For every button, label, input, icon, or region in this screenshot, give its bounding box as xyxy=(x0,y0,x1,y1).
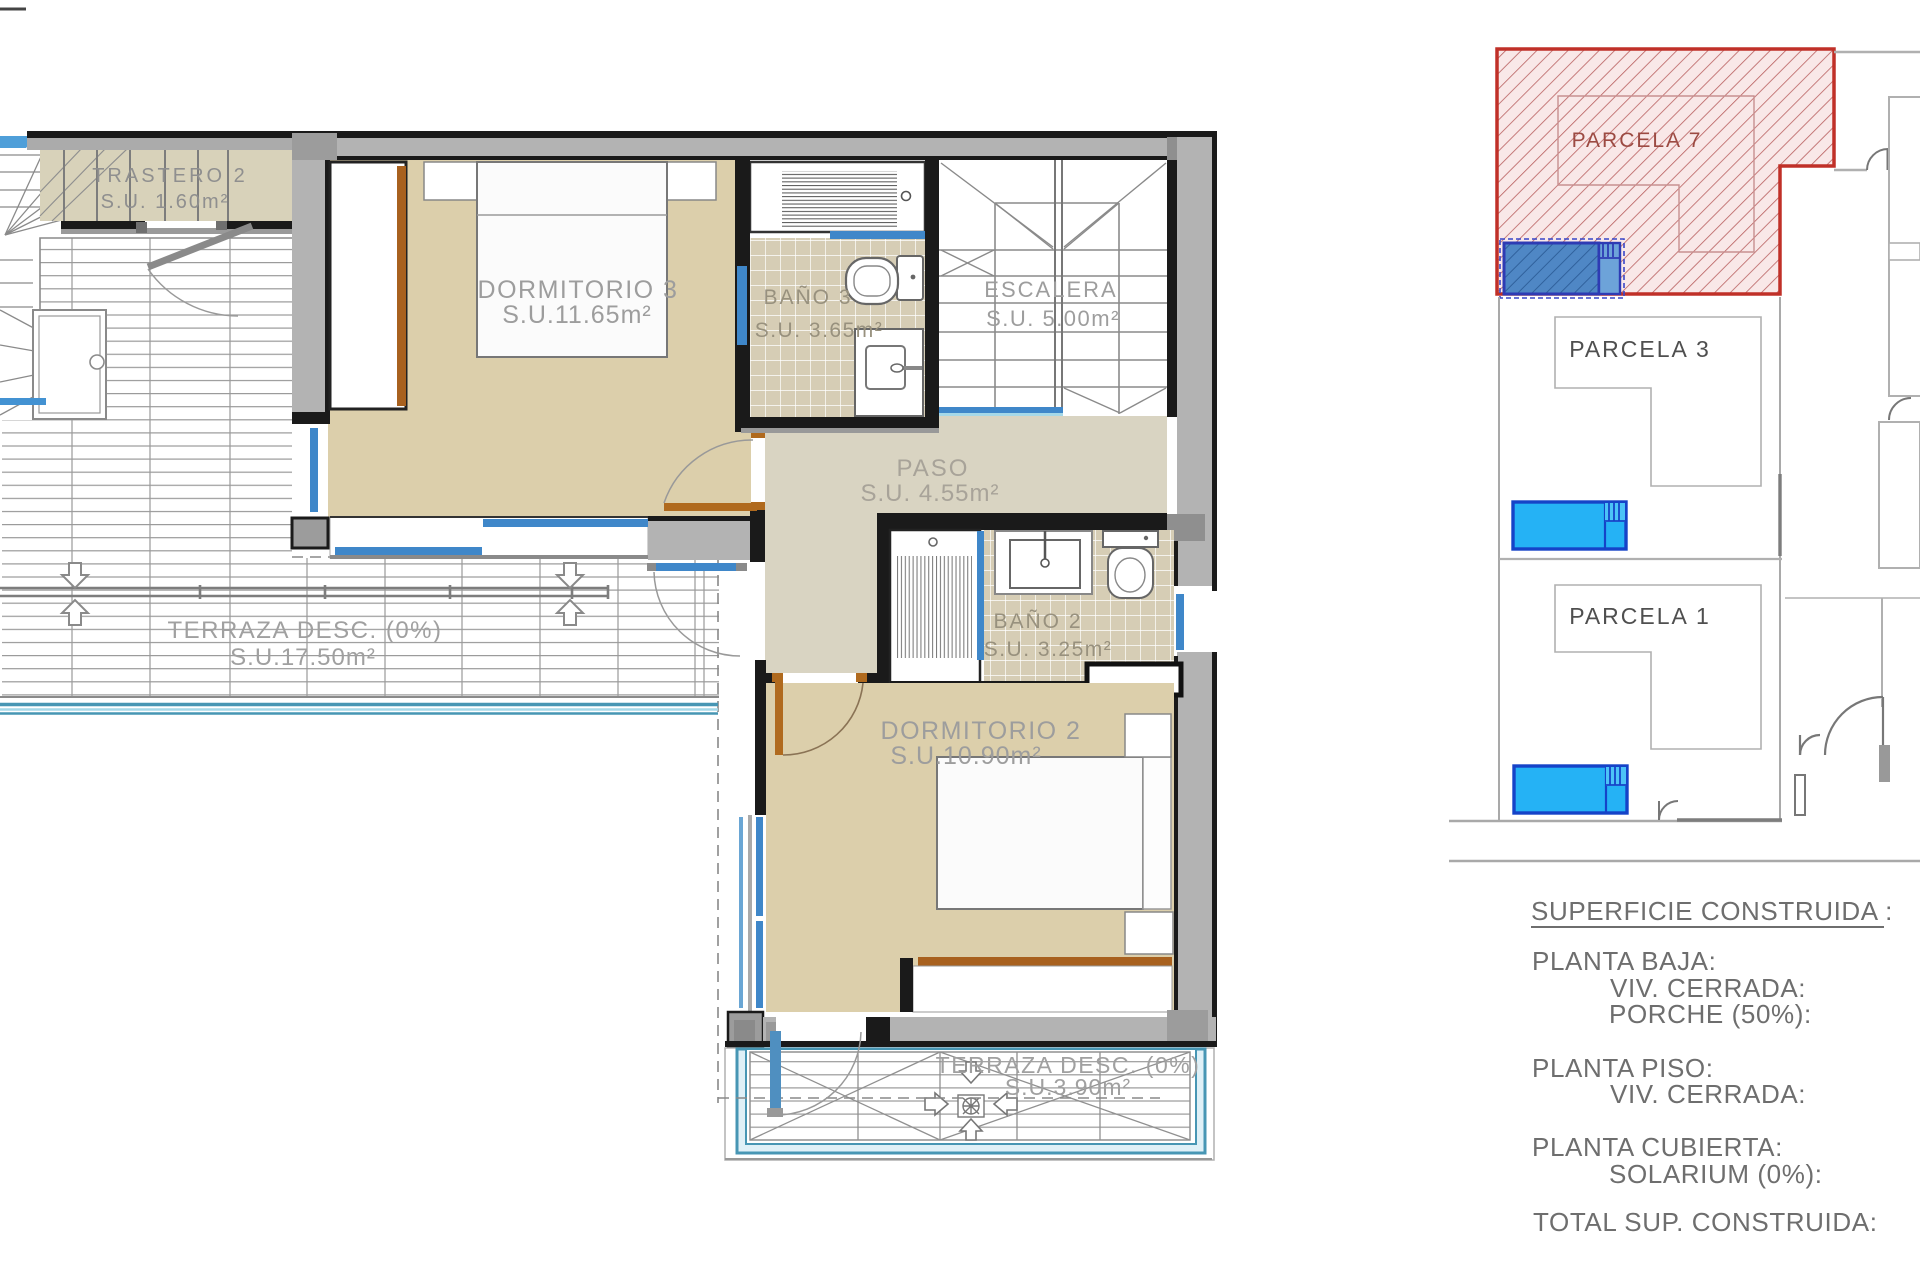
svg-text:PARCELA 3: PARCELA 3 xyxy=(1569,336,1711,362)
svg-text:S.U.3.90m²: S.U.3.90m² xyxy=(1005,1074,1131,1100)
svg-text:PLANTA BAJA:: PLANTA BAJA: xyxy=(1532,946,1716,976)
svg-text:DORMITORIO 2: DORMITORIO 2 xyxy=(881,717,1082,745)
svg-text:ESCALERA: ESCALERA xyxy=(984,277,1117,302)
svg-text:DORMITORIO 3: DORMITORIO 3 xyxy=(478,276,679,304)
svg-text:S.U.10.90m²: S.U.10.90m² xyxy=(890,742,1041,770)
svg-text:PARCELA 7: PARCELA 7 xyxy=(1572,129,1703,152)
svg-text:BAÑO 2: BAÑO 2 xyxy=(993,609,1082,633)
svg-text:TOTAL SUP. CONSTRUIDA:: TOTAL SUP. CONSTRUIDA: xyxy=(1533,1207,1878,1237)
svg-text:BAÑO 3: BAÑO 3 xyxy=(763,285,852,309)
svg-text:PLANTA CUBIERTA:: PLANTA CUBIERTA: xyxy=(1532,1132,1783,1162)
svg-text:PORCHE (50%):: PORCHE (50%): xyxy=(1609,999,1812,1029)
svg-text:S.U. 5.00m²: S.U. 5.00m² xyxy=(986,306,1120,331)
svg-text:S.U.17.50m²: S.U.17.50m² xyxy=(230,644,376,671)
svg-text:SUPERFICIE CONSTRUIDA :: SUPERFICIE CONSTRUIDA : xyxy=(1531,896,1893,926)
svg-text:S.U. 1.60m²: S.U. 1.60m² xyxy=(101,191,230,213)
svg-text:S.U. 3.65m²: S.U. 3.65m² xyxy=(755,319,884,342)
svg-text:TRASTERO 2: TRASTERO 2 xyxy=(92,165,248,187)
svg-text:PASO: PASO xyxy=(897,455,970,482)
svg-text:S.U.11.65m²: S.U.11.65m² xyxy=(502,301,651,329)
svg-text:VIV. CERRADA:: VIV. CERRADA: xyxy=(1610,1079,1806,1109)
svg-text:PARCELA 1: PARCELA 1 xyxy=(1569,603,1711,629)
svg-text:SOLARIUM (0%):: SOLARIUM (0%): xyxy=(1609,1159,1823,1189)
svg-text:TERRAZA DESC. (0%): TERRAZA DESC. (0%) xyxy=(167,617,442,644)
svg-text:S.U. 3.25m²: S.U. 3.25m² xyxy=(984,638,1113,661)
svg-text:S.U. 4.55m²: S.U. 4.55m² xyxy=(860,480,999,507)
